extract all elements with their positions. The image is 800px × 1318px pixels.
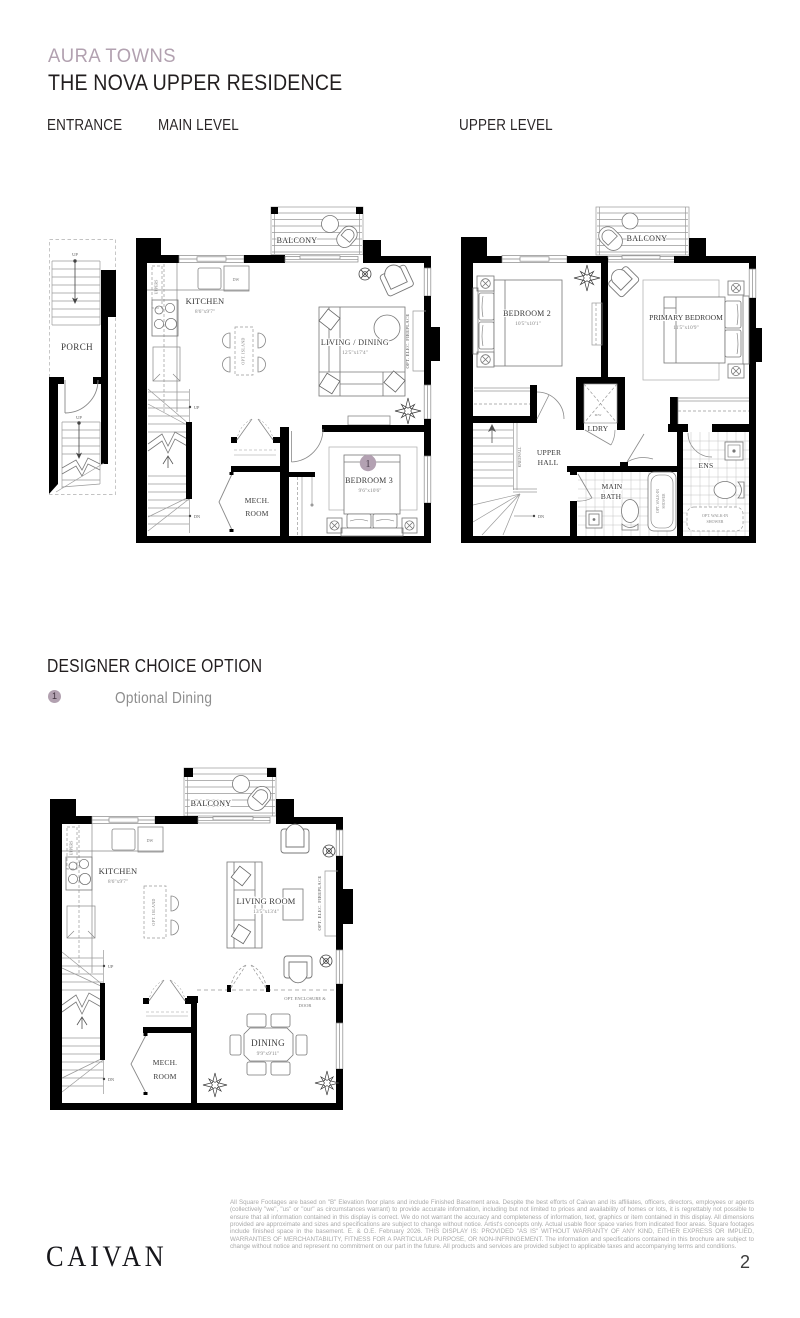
svg-text:HALL: HALL bbox=[538, 458, 559, 467]
svg-text:BEDROOM 2: BEDROOM 2 bbox=[503, 309, 551, 318]
svg-text:UP: UP bbox=[194, 405, 200, 410]
svg-text:OPT. ISLAND: OPT. ISLAND bbox=[241, 337, 246, 364]
svg-text:MECH.: MECH. bbox=[245, 496, 270, 505]
svg-text:MECH.: MECH. bbox=[153, 1058, 178, 1067]
svg-text:D/W: D/W bbox=[595, 413, 603, 417]
svg-text:UP: UP bbox=[108, 964, 114, 969]
svg-text:DN: DN bbox=[194, 514, 200, 519]
svg-text:SHOWER: SHOWER bbox=[662, 493, 666, 509]
svg-text:DN: DN bbox=[108, 1077, 114, 1082]
svg-text:UPPERS: UPPERS bbox=[154, 280, 159, 295]
svg-text:OPT. ENCLOSURE &: OPT. ENCLOSURE & bbox=[284, 996, 326, 1001]
svg-text:PORCH: PORCH bbox=[61, 342, 93, 352]
svg-text:12'5"x17'4": 12'5"x17'4" bbox=[342, 350, 368, 356]
svg-text:11'5"x10'9": 11'5"x10'9" bbox=[673, 325, 699, 331]
svg-text:UP: UP bbox=[72, 252, 78, 257]
svg-text:13'5"x13'4": 13'5"x13'4" bbox=[253, 909, 279, 915]
svg-text:DW: DW bbox=[233, 277, 240, 282]
svg-text:1: 1 bbox=[366, 459, 371, 470]
svg-text:OPT. ISLAND: OPT. ISLAND bbox=[151, 898, 156, 925]
svg-text:DW: DW bbox=[147, 838, 154, 843]
svg-text:PRIMARY BEDROOM: PRIMARY BEDROOM bbox=[649, 313, 723, 322]
svg-text:UPPER: UPPER bbox=[537, 448, 561, 457]
svg-text:BALCONY: BALCONY bbox=[277, 236, 318, 245]
svg-text:BALCONY: BALCONY bbox=[627, 234, 668, 243]
svg-text:DN: DN bbox=[538, 514, 544, 519]
svg-text:BEDROOM 3: BEDROOM 3 bbox=[345, 476, 393, 485]
svg-text:KITCHEN: KITCHEN bbox=[186, 296, 225, 306]
svg-text:LIVING / DINING: LIVING / DINING bbox=[321, 338, 389, 347]
svg-text:DOOR: DOOR bbox=[299, 1003, 312, 1008]
svg-text:8'6"x9'7": 8'6"x9'7" bbox=[108, 879, 128, 885]
svg-text:BALCONY: BALCONY bbox=[191, 799, 232, 808]
svg-text:OPT. WALK-IN: OPT. WALK-IN bbox=[656, 489, 660, 513]
svg-text:OPT. WALK-IN: OPT. WALK-IN bbox=[702, 513, 728, 518]
svg-text:UP: UP bbox=[76, 415, 82, 420]
svg-text:DINING: DINING bbox=[251, 1038, 285, 1048]
svg-text:BATH: BATH bbox=[601, 492, 622, 501]
svg-text:ROOM: ROOM bbox=[245, 509, 268, 518]
svg-text:OPT. ELEC. FIREPLACE: OPT. ELEC. FIREPLACE bbox=[317, 876, 322, 931]
svg-text:10'5"x10'1": 10'5"x10'1" bbox=[515, 321, 541, 327]
svg-text:8'6"x9'7": 8'6"x9'7" bbox=[195, 309, 215, 315]
svg-text:9'6"x10'6": 9'6"x10'6" bbox=[359, 488, 382, 494]
svg-text:ENS: ENS bbox=[698, 461, 713, 470]
svg-text:ROOM: ROOM bbox=[153, 1072, 176, 1081]
svg-text:MAIN: MAIN bbox=[602, 482, 623, 491]
svg-text:KITCHEN: KITCHEN bbox=[99, 866, 138, 876]
svg-text:SHOWER: SHOWER bbox=[707, 519, 724, 524]
svg-text:9'9"x9'11": 9'9"x9'11" bbox=[257, 1051, 280, 1057]
svg-text:LDRY: LDRY bbox=[588, 424, 609, 433]
svg-text:KNEEWALL: KNEEWALL bbox=[518, 446, 522, 467]
svg-text:LIVING ROOM: LIVING ROOM bbox=[236, 896, 295, 906]
svg-text:OPT. ELEC. FIREPLACE: OPT. ELEC. FIREPLACE bbox=[405, 314, 410, 369]
svg-text:UPPERS: UPPERS bbox=[69, 841, 74, 856]
